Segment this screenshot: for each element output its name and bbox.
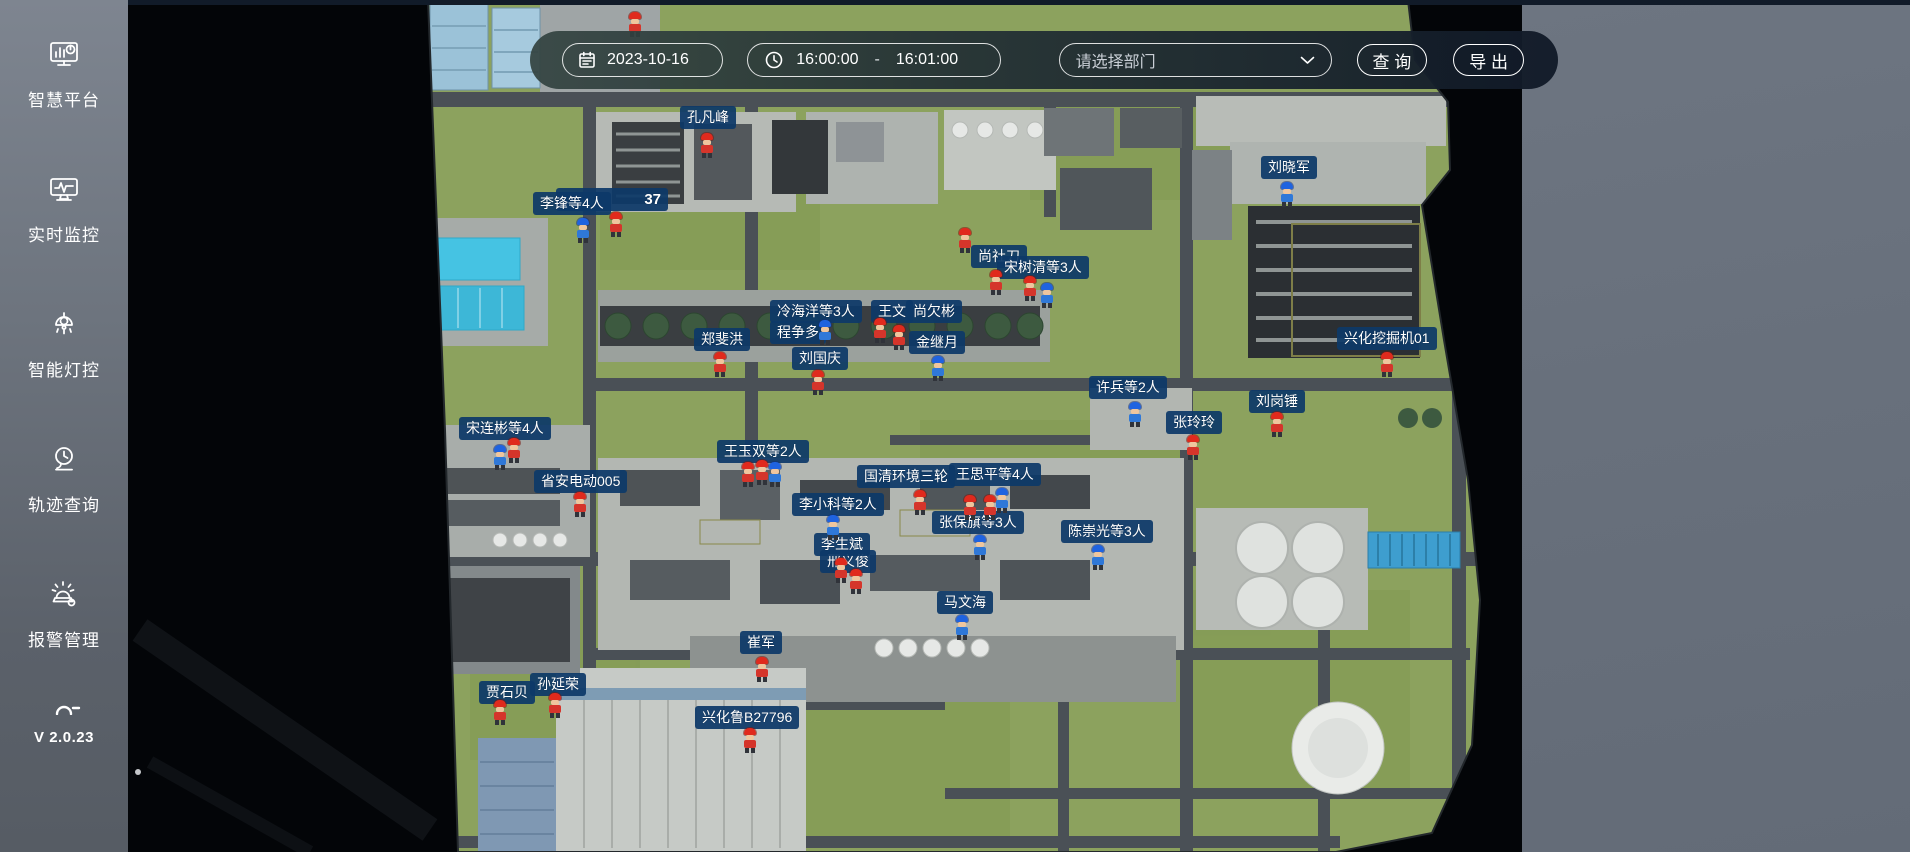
sidebar-item-label: 报警管理 — [28, 626, 100, 651]
worker-legs — [957, 635, 961, 640]
worker-legs — [1025, 296, 1029, 301]
map-marker-label[interactable]: 宋连彬等4人 — [459, 417, 551, 440]
query-toolbar: 2023-10-16 16:00:00 - 16:01:00 请选择部门 查 询… — [530, 31, 1558, 89]
date-picker[interactable]: 2023-10-16 — [562, 43, 723, 77]
helmet-icon — [1271, 412, 1283, 419]
helmet-icon — [1381, 352, 1393, 359]
map-marker-label[interactable]: 李锋等4人 — [533, 192, 611, 215]
helmet-icon — [701, 133, 713, 140]
helmet-icon — [874, 318, 886, 325]
alarm-siren-icon — [46, 578, 82, 612]
sidebar-item-alarm-management[interactable]: 报警管理 — [28, 578, 100, 651]
sidebar-item-smart-platform[interactable]: 智慧平台 — [28, 38, 100, 111]
worker-torso — [974, 547, 986, 555]
worker-marker-red[interactable] — [754, 657, 770, 682]
helmet-icon — [756, 657, 768, 664]
worker-legs — [851, 589, 855, 594]
dashboard-monitor-icon — [46, 38, 82, 72]
helmet-icon — [494, 445, 506, 452]
helmet-icon — [714, 352, 726, 359]
worker-legs — [743, 482, 747, 487]
sidebar-item-label: 轨迹查询 — [28, 491, 100, 516]
worker-marker-red[interactable] — [848, 569, 864, 594]
worker-torso — [574, 504, 586, 512]
worker-torso — [914, 502, 926, 510]
helmet-icon — [964, 495, 976, 502]
helmet-icon — [827, 515, 839, 522]
map-terrain — [420, 0, 1500, 852]
sidebar: 智慧平台 实时监控 智能灯控 — [0, 0, 128, 852]
department-placeholder: 请选择部门 — [1076, 48, 1156, 72]
helmet-icon — [1092, 545, 1104, 552]
worker-marker-red[interactable] — [699, 133, 715, 158]
worker-torso — [714, 364, 726, 372]
map-marker-label[interactable]: 尚欠彬 — [906, 300, 962, 323]
map-marker-label[interactable]: 宋树清等3人 — [997, 256, 1089, 279]
time-end-value: 16:01:00 — [896, 51, 958, 69]
helmet-icon — [574, 492, 586, 499]
worker-legs — [813, 390, 817, 395]
sidebar-item-label: 实时监控 — [28, 221, 100, 246]
helmet-icon — [1024, 276, 1036, 283]
worker-marker-red[interactable] — [506, 438, 522, 463]
time-start-value: 16:00:00 — [796, 51, 858, 69]
worker-torso — [990, 282, 1002, 290]
department-select[interactable]: 请选择部门 — [1059, 43, 1332, 77]
worker-torso — [1129, 414, 1141, 422]
map-marker-label[interactable]: 冷海洋等3人 — [770, 300, 862, 323]
app-version: V 2.0.23 — [34, 729, 94, 746]
map-marker-label[interactable]: 金继月 — [909, 331, 965, 354]
time-range-separator: - — [875, 51, 880, 69]
worker-marker-red[interactable] — [912, 490, 928, 515]
worker-legs — [1282, 202, 1286, 207]
worker-torso — [893, 337, 905, 345]
worker-marker-red[interactable] — [891, 325, 907, 350]
worker-torso — [1092, 557, 1104, 565]
worker-legs — [745, 748, 749, 753]
worker-torso — [996, 500, 1008, 508]
worker-legs — [1130, 422, 1134, 427]
helmet-icon — [549, 693, 561, 700]
worker-legs — [836, 578, 840, 583]
map-marker-label[interactable]: 陈崇光等3人 — [1061, 520, 1153, 543]
worker-marker-blue[interactable] — [954, 615, 970, 640]
worker-marker-blue[interactable] — [972, 535, 988, 560]
worker-legs — [915, 510, 919, 515]
scene-light-dot — [135, 769, 141, 775]
worker-legs — [611, 232, 615, 237]
worker-legs — [875, 338, 879, 343]
sidebar-item-realtime-monitor[interactable]: 实时监控 — [28, 173, 100, 246]
helmet-icon — [819, 320, 831, 327]
worker-torso — [744, 740, 756, 748]
worker-marker-red[interactable] — [572, 492, 588, 517]
map-marker-label[interactable]: 刘晓军 — [1261, 156, 1317, 179]
worker-marker-red[interactable] — [1022, 276, 1038, 301]
worker-torso — [756, 669, 768, 677]
helmet-icon — [850, 569, 862, 576]
worker-torso — [819, 332, 831, 340]
worker-torso — [1187, 447, 1199, 455]
worker-torso — [874, 330, 886, 338]
worker-marker-red[interactable] — [712, 352, 728, 377]
worker-marker-blue[interactable] — [1039, 283, 1055, 308]
worker-torso — [577, 230, 589, 238]
map-marker-label[interactable]: 马文海 — [937, 591, 993, 614]
worker-marker-red[interactable] — [608, 212, 624, 237]
worker-legs — [1042, 303, 1046, 308]
map-marker-label[interactable]: 刘岗锤 — [1249, 390, 1305, 413]
worker-torso — [494, 712, 506, 720]
worker-legs — [702, 153, 706, 158]
calendar-icon — [577, 50, 597, 70]
helmet-icon — [932, 356, 944, 363]
worker-torso — [1271, 424, 1283, 432]
map-marker-label[interactable]: 刘国庆 — [792, 347, 848, 370]
worker-marker-red[interactable] — [1269, 412, 1285, 437]
worker-torso — [932, 368, 944, 376]
map-marker-label[interactable]: 王思平等4人 — [949, 463, 1041, 486]
worker-torso — [1041, 295, 1053, 303]
worker-torso — [742, 474, 754, 482]
worker-torso — [827, 527, 839, 535]
partial-person-icon — [46, 699, 82, 715]
worker-marker-red[interactable] — [957, 228, 973, 253]
worker-legs — [495, 720, 499, 725]
helmet-icon — [812, 370, 824, 377]
sidebar-item-smart-lighting[interactable]: 智能灯控 — [28, 308, 100, 381]
worker-marker-red[interactable] — [872, 318, 888, 343]
export-button[interactable]: 导 出 — [1453, 44, 1524, 76]
helmet-icon — [1281, 182, 1293, 189]
map-marker-label[interactable]: 兴化鲁B27796 — [695, 706, 799, 729]
worker-marker-blue[interactable] — [930, 356, 946, 381]
helmet-icon — [974, 535, 986, 542]
worker-legs — [991, 290, 995, 295]
map-marker-label[interactable]: 李生斌 — [814, 533, 870, 556]
worker-torso — [835, 570, 847, 578]
worker-marker-blue[interactable] — [575, 218, 591, 243]
query-button[interactable]: 查 询 — [1357, 44, 1428, 76]
worker-marker-red[interactable] — [833, 558, 849, 583]
worker-legs — [985, 515, 989, 520]
worker-legs — [757, 480, 761, 485]
helmet-icon — [959, 228, 971, 235]
helmet-icon — [1187, 435, 1199, 442]
worker-torso — [1381, 364, 1393, 372]
map-marker-label[interactable]: 国清环境三轮 — [857, 465, 955, 488]
worker-torso — [1024, 288, 1036, 296]
worker-legs — [1188, 455, 1192, 460]
worker-marker-blue[interactable] — [1127, 402, 1143, 427]
realtime-monitor-icon — [46, 173, 82, 207]
helmet-icon — [577, 218, 589, 225]
helmet-icon — [508, 438, 520, 445]
sidebar-item-label: 智能灯控 — [28, 356, 100, 381]
helmet-icon — [914, 490, 926, 497]
worker-marker-red[interactable] — [742, 728, 758, 753]
helmet-icon — [1129, 402, 1141, 409]
map-marker-label[interactable]: 张玲玲 — [1166, 411, 1222, 434]
worker-marker-red[interactable] — [1379, 352, 1395, 377]
worker-marker-blue[interactable] — [1279, 182, 1295, 207]
worker-marker-red[interactable] — [810, 370, 826, 395]
map-marker-label[interactable]: 郑斐洪 — [694, 328, 750, 351]
map-marker-label[interactable]: 兴化挖掘机01 — [1337, 327, 1437, 350]
worker-torso — [701, 145, 713, 153]
time-range-picker[interactable]: 16:00:00 - 16:01:00 — [747, 43, 1000, 77]
map-marker-label[interactable]: 李小科等2人 — [792, 493, 884, 516]
worker-legs — [1272, 432, 1276, 437]
trajectory-camera-icon — [46, 443, 82, 477]
helmet-icon — [990, 270, 1002, 277]
worker-marker-blue[interactable] — [825, 515, 841, 540]
worker-torso — [1281, 194, 1293, 202]
helmet-icon — [956, 615, 968, 622]
helmet-icon — [1041, 283, 1053, 290]
worker-torso — [610, 224, 622, 232]
worker-legs — [575, 512, 579, 517]
chevron-down-icon — [1300, 56, 1315, 65]
helmet-icon — [835, 558, 847, 565]
worker-torso — [964, 507, 976, 515]
scene-light-streaks — [140, 630, 430, 852]
worker-torso — [549, 705, 561, 713]
worker-marker-blue[interactable] — [817, 320, 833, 345]
clock-icon — [764, 50, 784, 70]
helmet-icon — [494, 700, 506, 707]
worker-legs — [933, 376, 937, 381]
map-marker-label[interactable]: 崔军 — [740, 631, 782, 654]
worker-legs — [975, 555, 979, 560]
helmet-icon — [769, 462, 781, 469]
helmet-icon — [893, 325, 905, 332]
worker-marker-blue[interactable] — [767, 462, 783, 487]
worker-torso — [812, 382, 824, 390]
worker-legs — [770, 482, 774, 487]
worker-legs — [1382, 372, 1386, 377]
worker-torso — [494, 457, 506, 465]
worker-legs — [960, 248, 964, 253]
worker-legs — [1093, 565, 1097, 570]
worker-legs — [715, 372, 719, 377]
helmet-icon — [610, 212, 622, 219]
worker-legs — [757, 677, 761, 682]
empty-viewport-panel — [1522, 5, 1910, 852]
top-edge-strip — [128, 0, 1910, 5]
worker-torso — [956, 627, 968, 635]
sidebar-item-trajectory-query[interactable]: 轨迹查询 — [28, 443, 100, 516]
worker-marker-red[interactable] — [988, 270, 1004, 295]
worker-marker-red[interactable] — [492, 700, 508, 725]
helmet-icon — [742, 462, 754, 469]
sidebar-item-label: 智慧平台 — [28, 86, 100, 111]
helmet-icon — [629, 12, 641, 19]
worker-marker-red[interactable] — [547, 693, 563, 718]
helmet-icon — [996, 488, 1008, 495]
worker-legs — [578, 238, 582, 243]
map-marker-label[interactable]: 许兵等2人 — [1089, 376, 1167, 399]
worker-marker-blue[interactable] — [994, 488, 1010, 513]
date-value: 2023-10-16 — [607, 51, 689, 69]
map-marker-label[interactable]: 省安电动005 — [534, 470, 627, 493]
smart-lamp-icon — [46, 308, 82, 342]
worker-marker-blue[interactable] — [1090, 545, 1106, 570]
worker-legs — [828, 535, 832, 540]
worker-legs — [509, 458, 513, 463]
helmet-icon — [744, 728, 756, 735]
worker-legs — [997, 508, 1001, 513]
worker-torso — [508, 450, 520, 458]
map-marker-label[interactable]: 孔凡峰 — [680, 106, 736, 129]
worker-legs — [820, 340, 824, 345]
worker-legs — [894, 345, 898, 350]
worker-marker-red[interactable] — [962, 495, 978, 520]
worker-legs — [495, 465, 499, 470]
worker-torso — [959, 240, 971, 248]
worker-torso — [850, 581, 862, 589]
worker-legs — [550, 713, 554, 718]
worker-torso — [769, 474, 781, 482]
worker-legs — [965, 515, 969, 520]
worker-marker-red[interactable] — [1185, 435, 1201, 460]
